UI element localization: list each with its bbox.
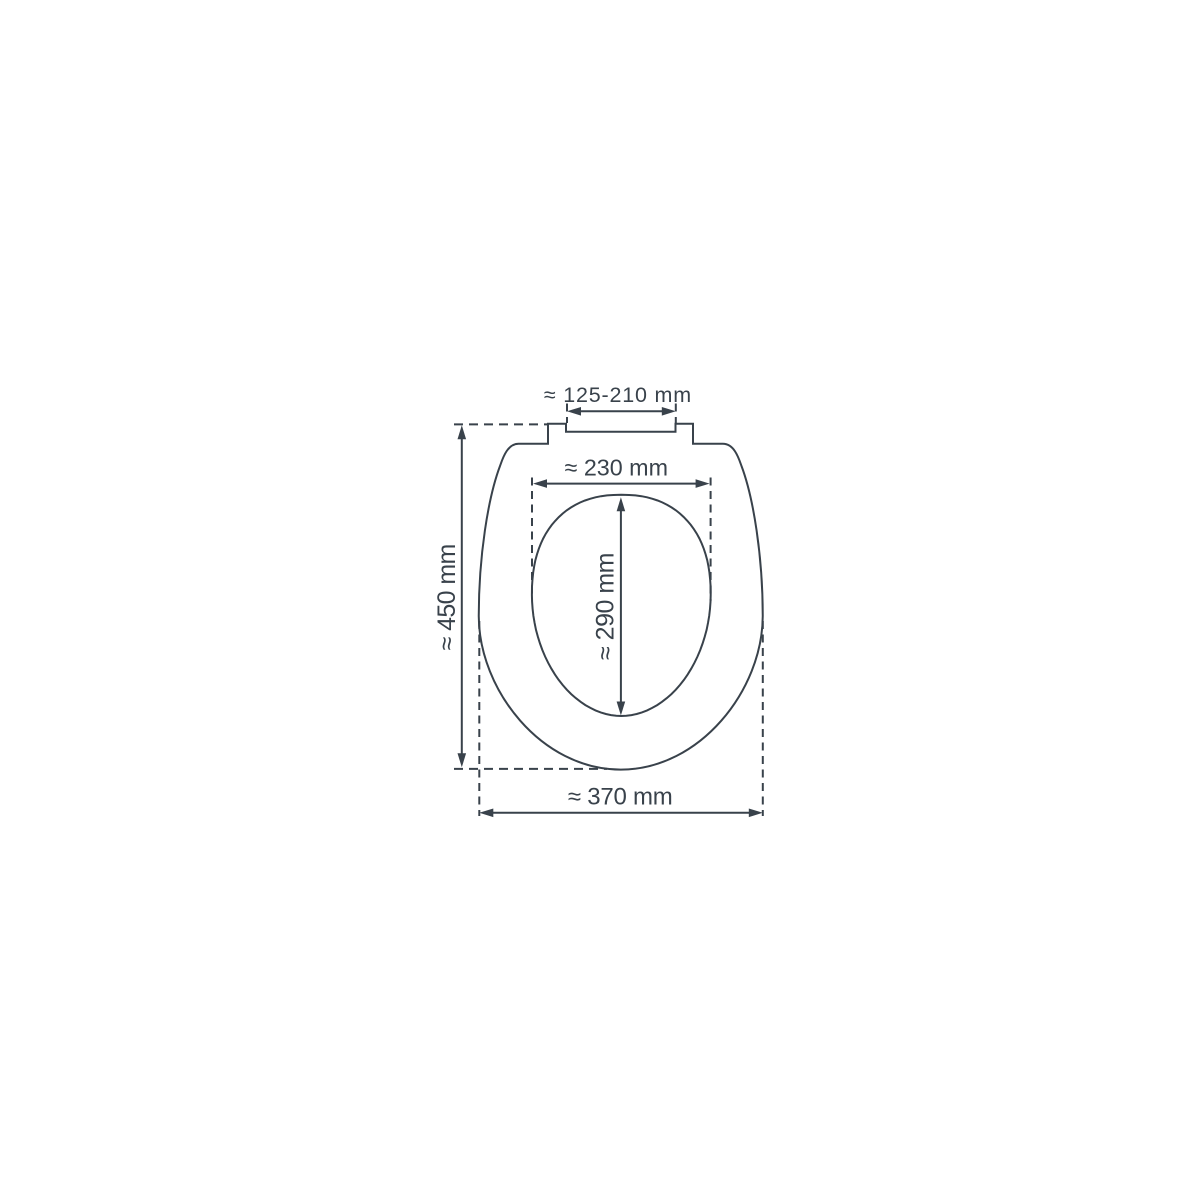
svg-text:≈ 230 mm: ≈ 230 mm bbox=[565, 454, 668, 480]
svg-text:≈ 370 mm: ≈ 370 mm bbox=[568, 783, 673, 810]
svg-text:≈ 290 mm: ≈ 290 mm bbox=[591, 553, 619, 660]
svg-text:≈ 125-210 mm: ≈ 125-210 mm bbox=[544, 383, 692, 407]
svg-text:≈ 450 mm: ≈ 450 mm bbox=[433, 544, 461, 650]
